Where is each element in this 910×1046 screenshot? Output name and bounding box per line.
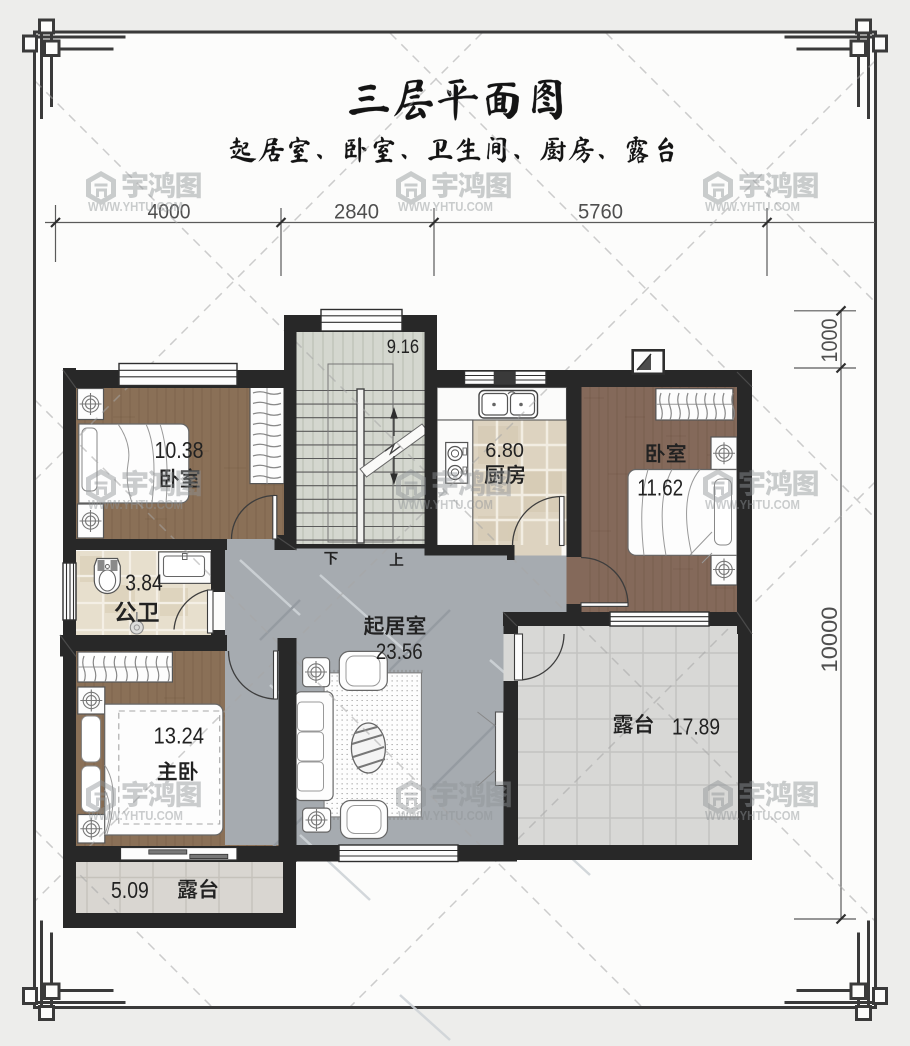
svg-text:2840: 2840 bbox=[334, 201, 379, 224]
svg-text:23.56: 23.56 bbox=[376, 639, 423, 664]
svg-text:11.62: 11.62 bbox=[637, 474, 683, 500]
svg-text:10.38: 10.38 bbox=[155, 437, 204, 463]
svg-text:10000: 10000 bbox=[817, 607, 842, 673]
svg-text:13.24: 13.24 bbox=[154, 722, 205, 748]
svg-text:6.80: 6.80 bbox=[485, 440, 524, 462]
svg-text:5760: 5760 bbox=[578, 201, 623, 224]
svg-text:5.09: 5.09 bbox=[111, 877, 149, 903]
svg-text:17.89: 17.89 bbox=[672, 714, 720, 740]
svg-text:3.84: 3.84 bbox=[125, 569, 163, 595]
svg-text:9.16: 9.16 bbox=[387, 336, 419, 358]
svg-text:1000: 1000 bbox=[817, 319, 842, 363]
